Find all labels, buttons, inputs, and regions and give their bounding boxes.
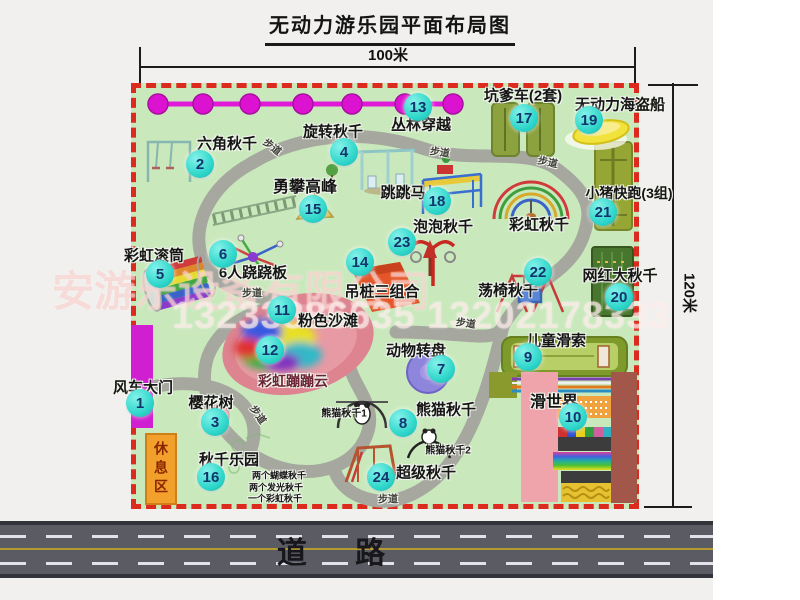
rest-area-label: 休息区	[151, 441, 171, 498]
top-dimension-line	[140, 66, 635, 68]
map-marker-10[interactable]: 10	[559, 403, 587, 431]
right-dimension-label: 120米	[680, 273, 701, 313]
map-marker-9[interactable]: 9	[514, 343, 542, 371]
page-title: 无动力游乐园平面布局图	[265, 9, 515, 46]
map-marker-7[interactable]: 7	[427, 355, 455, 383]
map-marker-21[interactable]: 21	[589, 198, 617, 226]
map-marker-14[interactable]: 14	[346, 248, 374, 276]
map-marker-2[interactable]: 2	[186, 150, 214, 178]
map-marker-18[interactable]: 18	[423, 187, 451, 215]
right-dimension-tick-top	[648, 84, 698, 86]
map-marker-23[interactable]: 23	[388, 228, 416, 256]
map-marker-11[interactable]: 11	[268, 296, 296, 324]
top-dimension-label: 100米	[368, 44, 408, 65]
rest-area: 休息区	[145, 433, 177, 505]
screenshot-root: 无动力游乐园平面布局图 100米 120米	[0, 0, 800, 600]
map-marker-1[interactable]: 1	[126, 389, 154, 417]
map-marker-3[interactable]: 3	[201, 408, 229, 436]
road-label: 道 路	[277, 528, 405, 572]
right-dimension-line	[672, 83, 674, 507]
map-marker-24[interactable]: 24	[367, 463, 395, 491]
map-marker-15[interactable]: 15	[299, 195, 327, 223]
map-marker-17[interactable]: 17	[510, 104, 538, 132]
map-marker-4[interactable]: 4	[330, 138, 358, 166]
right-dimension-tick-bottom	[644, 506, 692, 508]
road: 道 路	[0, 521, 713, 578]
top-dimension-tick-right	[634, 47, 636, 87]
watermark-phones: 13233886635 13202178333	[172, 295, 671, 338]
map-marker-19[interactable]: 19	[575, 106, 603, 134]
map-marker-16[interactable]: 16	[197, 463, 225, 491]
map-marker-6[interactable]: 6	[209, 240, 237, 268]
photo-background: 无动力游乐园平面布局图 100米 120米	[0, 0, 713, 600]
map-marker-8[interactable]: 8	[389, 409, 417, 437]
map-marker-5[interactable]: 5	[146, 260, 174, 288]
map-marker-20[interactable]: 20	[605, 283, 633, 311]
map-marker-12[interactable]: 12	[256, 336, 284, 364]
map-marker-22[interactable]: 22	[524, 258, 552, 286]
map-marker-13[interactable]: 13	[404, 93, 432, 121]
top-dimension-tick-left	[139, 47, 141, 87]
